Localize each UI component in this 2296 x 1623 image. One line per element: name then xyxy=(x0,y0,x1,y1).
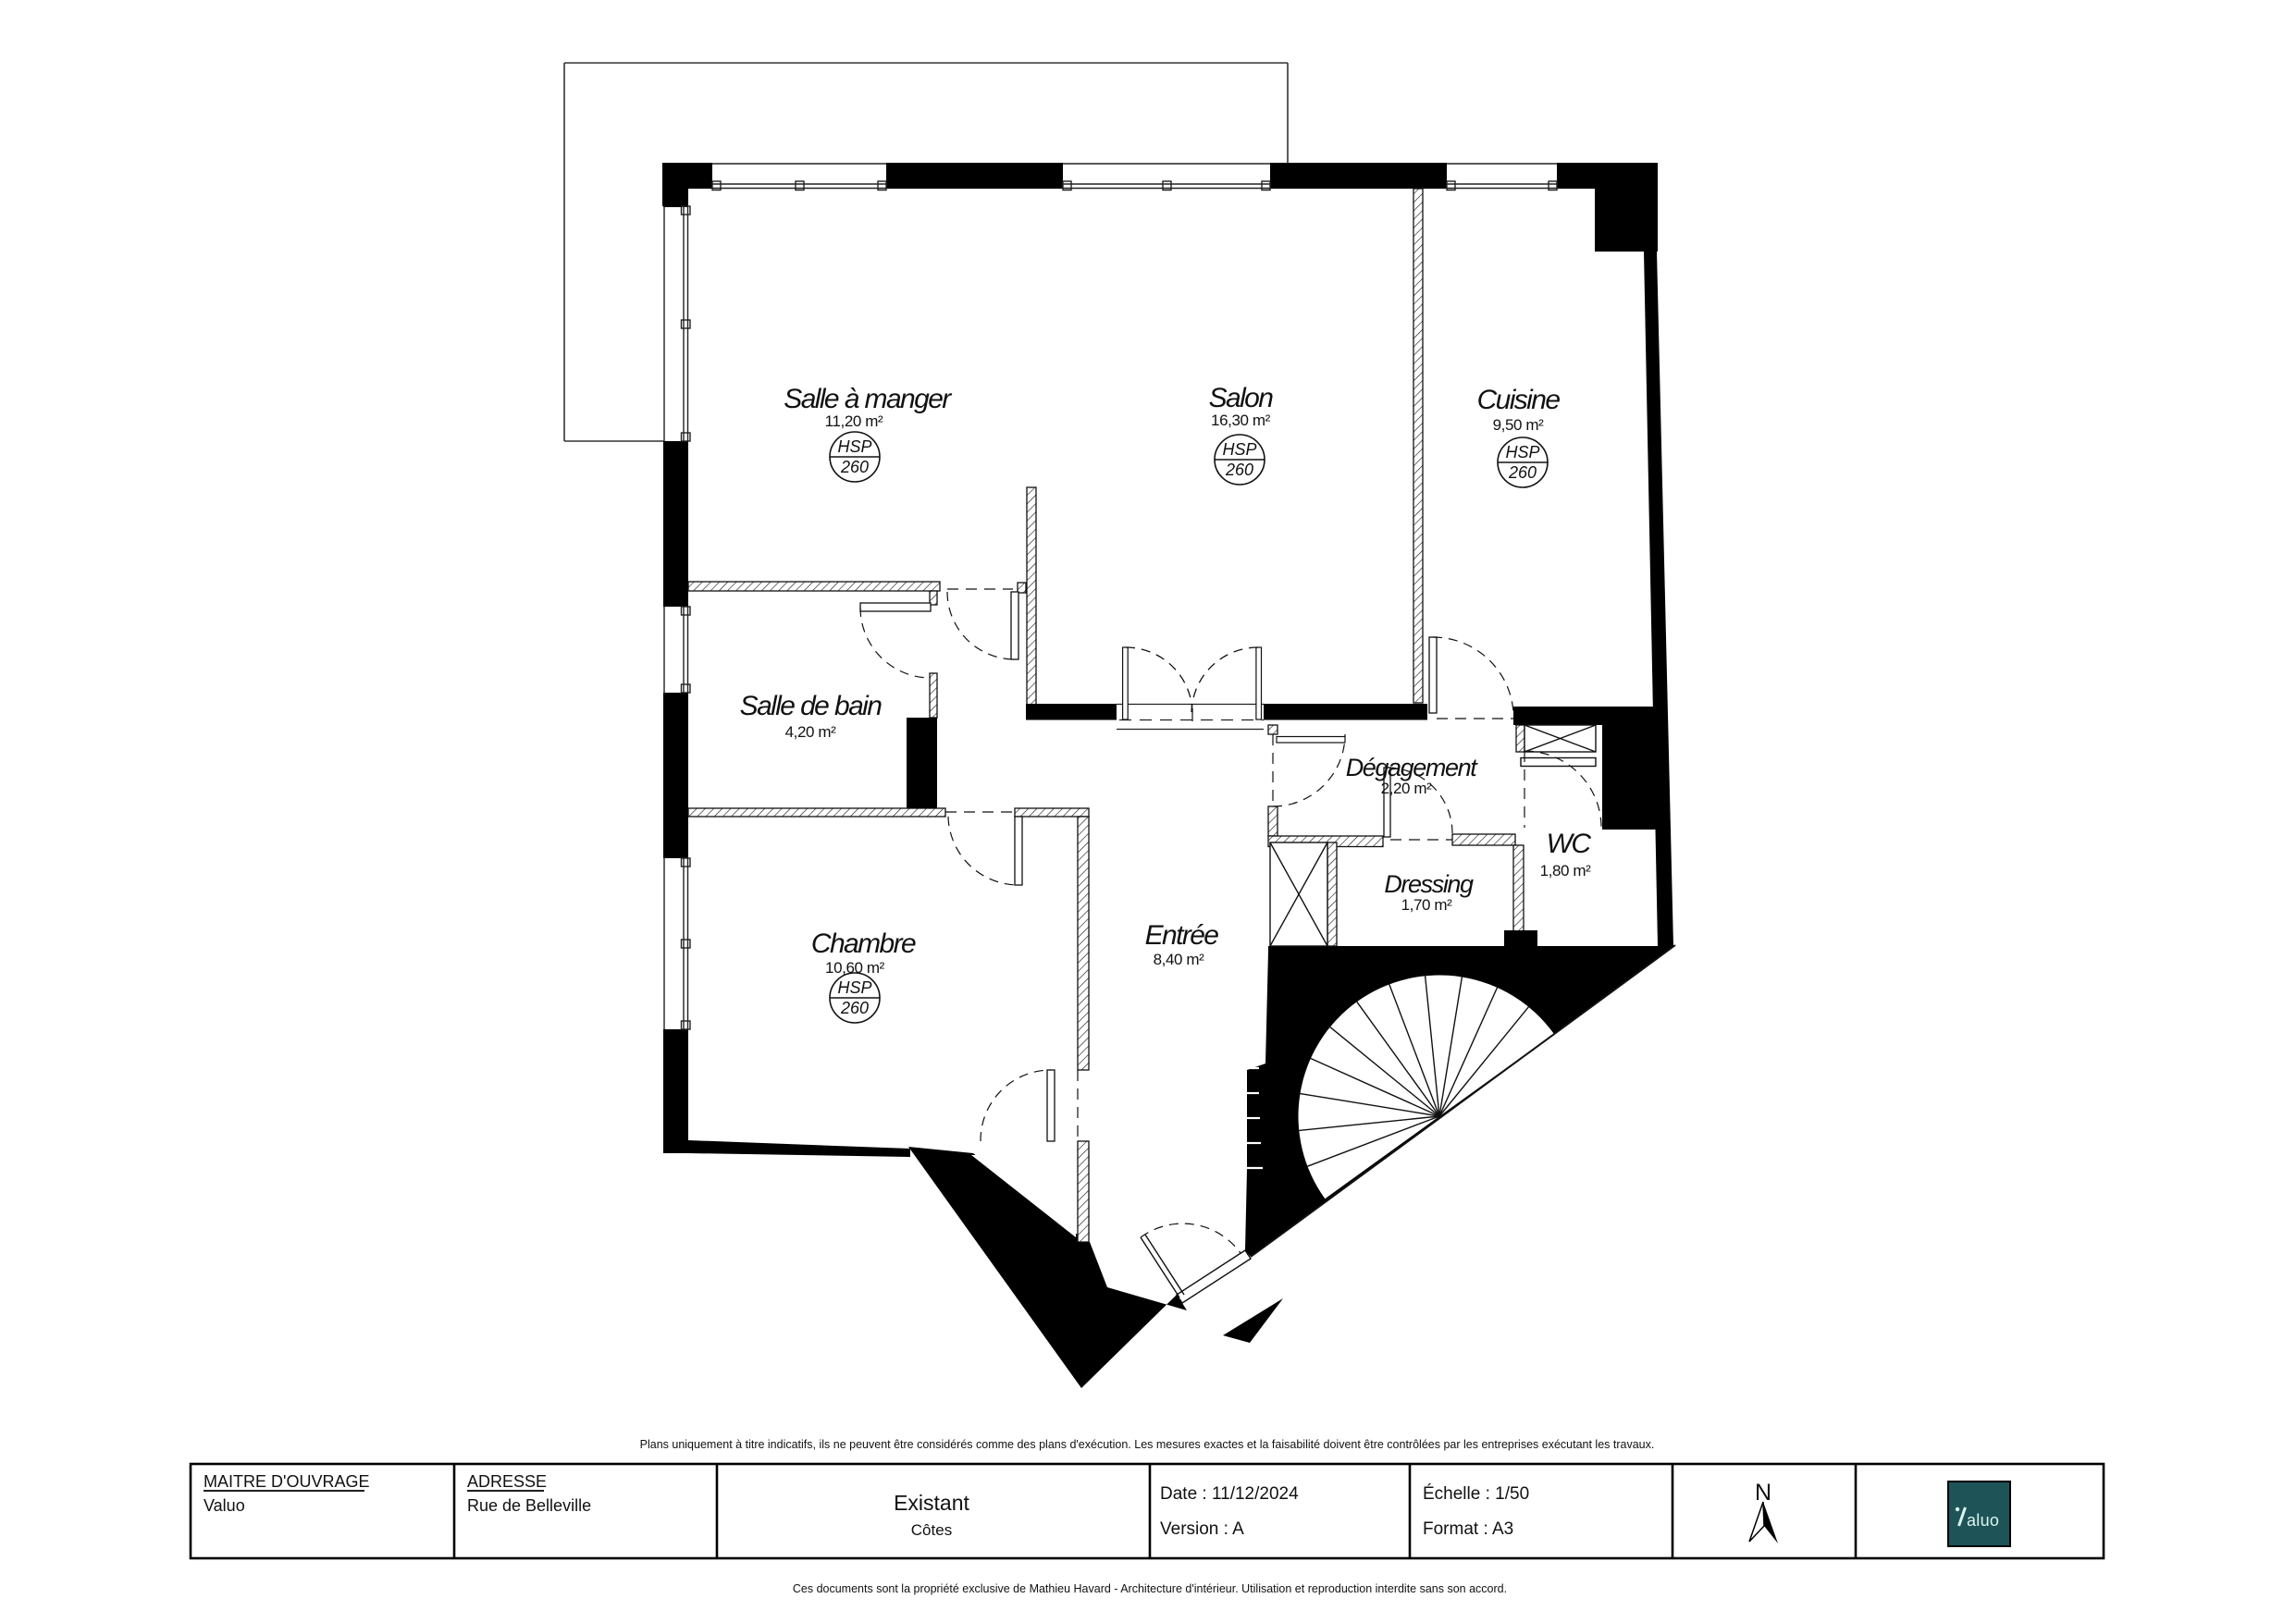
svg-text:HSP: HSP xyxy=(1222,440,1256,459)
svg-text:9,50 m²: 9,50 m² xyxy=(1493,416,1545,434)
svg-text:Valuo: Valuo xyxy=(204,1496,245,1515)
svg-text:aluo: aluo xyxy=(1967,1511,1999,1530)
svg-text:Plans uniquement à titre indic: Plans uniquement à titre indicatifs, ils… xyxy=(640,1438,1655,1451)
svg-text:HSP: HSP xyxy=(1505,443,1539,461)
svg-text:Chambre: Chambre xyxy=(811,928,916,959)
svg-text:260: 260 xyxy=(840,458,869,476)
svg-text:10,60 m²: 10,60 m² xyxy=(825,959,885,977)
svg-text:Échelle : 1/50: Échelle : 1/50 xyxy=(1423,1484,1529,1504)
svg-text:2,20 m²: 2,20 m² xyxy=(1381,780,1433,797)
svg-text:Format : A3: Format : A3 xyxy=(1423,1519,1513,1539)
svg-text:16,30 m²: 16,30 m² xyxy=(1211,412,1271,429)
svg-text:WC: WC xyxy=(1547,829,1592,859)
svg-text:1,80 m²: 1,80 m² xyxy=(1540,862,1592,879)
svg-text:Entrée: Entrée xyxy=(1145,920,1219,951)
svg-text:1,70 m²: 1,70 m² xyxy=(1401,896,1453,914)
svg-text:Rue de Belleville: Rue de Belleville xyxy=(467,1496,591,1515)
svg-text:260: 260 xyxy=(1225,461,1253,479)
svg-text:Dégagement: Dégagement xyxy=(1346,754,1479,781)
svg-text:Ces documents sont la propriét: Ces documents sont la propriété exclusiv… xyxy=(793,1582,1507,1595)
svg-text:N: N xyxy=(1755,1480,1771,1506)
svg-text:Côtes: Côtes xyxy=(911,1521,952,1539)
svg-text:4,20 m²: 4,20 m² xyxy=(785,723,837,741)
svg-text:Cuisine: Cuisine xyxy=(1477,385,1561,415)
svg-text:Salle de bain: Salle de bain xyxy=(740,691,883,721)
svg-text:8,40 m²: 8,40 m² xyxy=(1154,951,1205,968)
svg-text:Existant: Existant xyxy=(894,1491,969,1515)
svg-text:Salle à manger: Salle à manger xyxy=(784,384,952,414)
svg-text:Version : A: Version : A xyxy=(1160,1519,1244,1539)
svg-text:Dressing: Dressing xyxy=(1384,870,1474,898)
svg-text:HSP: HSP xyxy=(837,978,871,997)
svg-text:MAITRE D'OUVRAGE: MAITRE D'OUVRAGE xyxy=(204,1472,369,1491)
svg-text:Date : 11/12/2024: Date : 11/12/2024 xyxy=(1160,1484,1299,1504)
svg-text:HSP: HSP xyxy=(837,437,871,456)
svg-text:11,20 m²: 11,20 m² xyxy=(825,412,883,430)
svg-text:Salon: Salon xyxy=(1209,383,1274,413)
svg-text:260: 260 xyxy=(1508,463,1537,482)
svg-text:ADRESSE: ADRESSE xyxy=(467,1472,547,1491)
svg-text:260: 260 xyxy=(840,999,869,1017)
